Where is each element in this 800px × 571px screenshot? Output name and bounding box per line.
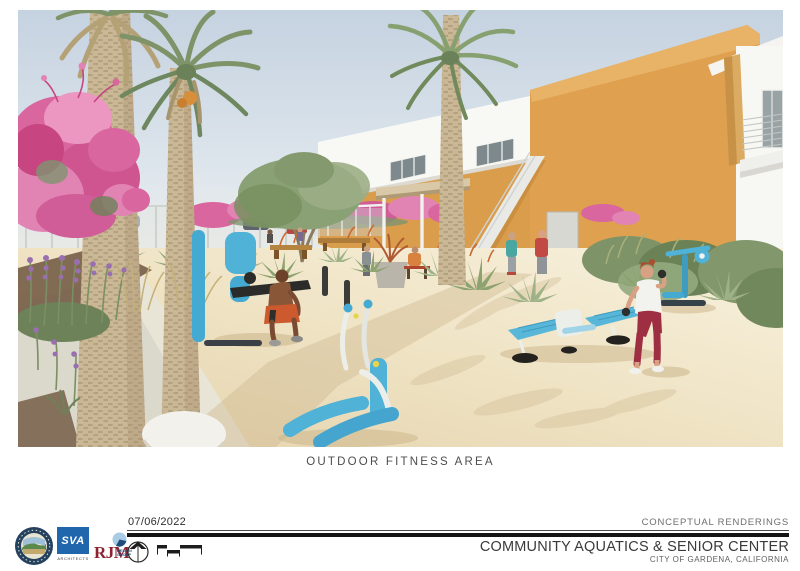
- north-arrow-icon: [128, 542, 148, 563]
- presentation-sheet: OUTDOOR FITNESS AREA SVA ARCHITECTS RJM …: [0, 0, 800, 571]
- sva-logo-mark: SVA: [57, 527, 89, 554]
- project-location: CITY OF GARDENA, CALIFORNIA: [650, 555, 789, 564]
- sva-architects-logo: SVA ARCHITECTS: [57, 527, 89, 561]
- scale-bar-icon: [157, 545, 202, 557]
- series-label: CONCEPTUAL RENDERINGS: [642, 517, 789, 528]
- rendering-scene: [18, 10, 783, 447]
- city-of-gardena-seal-logo: [14, 526, 54, 566]
- sheet-date: 07/06/2022: [128, 516, 186, 528]
- rendering-outdoor-fitness-area: [18, 10, 783, 447]
- sva-logo-subtext: ARCHITECTS: [57, 556, 89, 561]
- image-caption: OUTDOOR FITNESS AREA: [18, 456, 783, 468]
- title-block-rule-thin: [127, 530, 789, 531]
- project-title: COMMUNITY AQUATICS & SENIOR CENTER: [480, 539, 789, 555]
- north-arrow-and-scale: [127, 539, 227, 565]
- title-block-rule-thick: [127, 533, 789, 537]
